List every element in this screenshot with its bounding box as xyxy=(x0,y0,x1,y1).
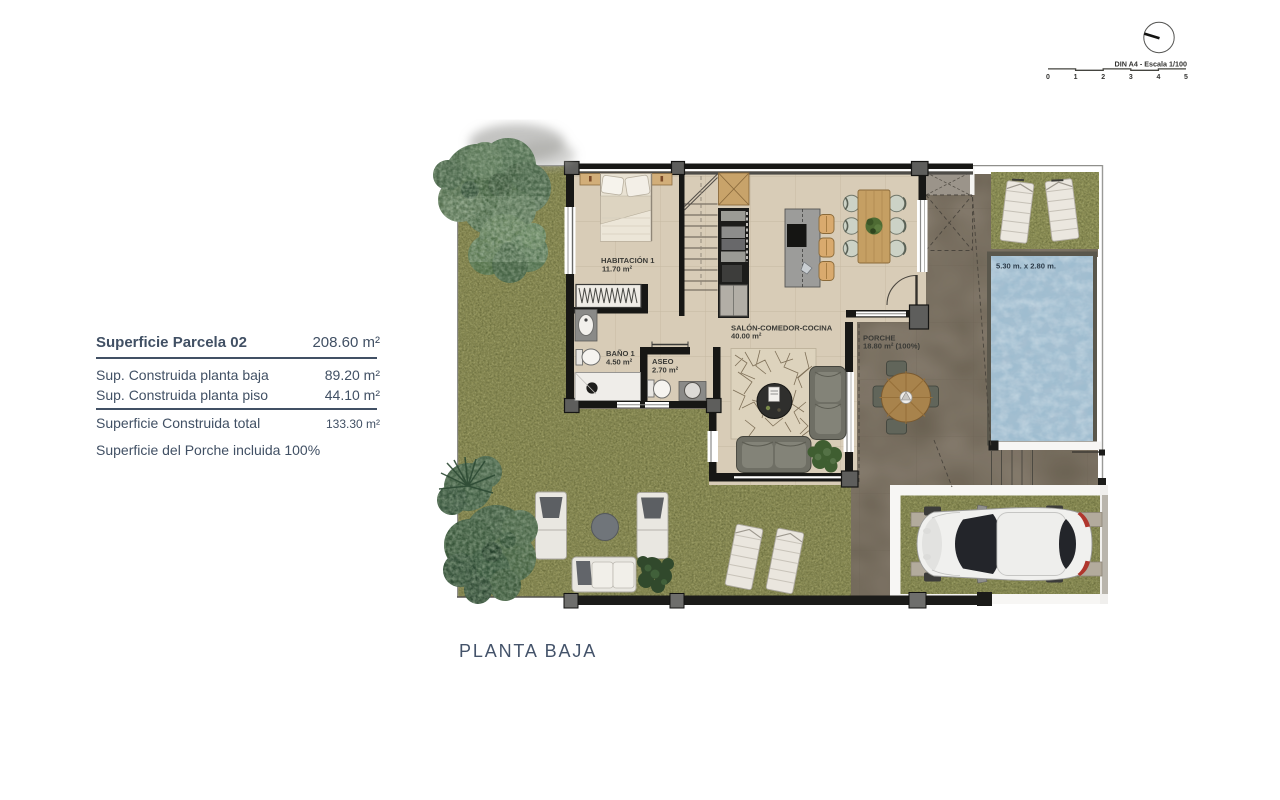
svg-text:1: 1 xyxy=(1074,74,1078,81)
svg-text:DIN A4 - Escala 1/100: DIN A4 - Escala 1/100 xyxy=(1115,60,1187,69)
svg-text:0: 0 xyxy=(1046,74,1050,81)
svg-text:5.30 m. x 2.80 m.: 5.30 m. x 2.80 m. xyxy=(996,262,1056,271)
svg-text:2.70 m²: 2.70 m² xyxy=(652,366,679,375)
svg-text:11.70 m²: 11.70 m² xyxy=(602,265,632,274)
svg-text:4.50 m²: 4.50 m² xyxy=(606,358,633,367)
svg-text:4: 4 xyxy=(1156,74,1160,81)
svg-text:5: 5 xyxy=(1184,74,1188,81)
svg-text:3: 3 xyxy=(1129,74,1133,81)
svg-text:40.00 m²: 40.00 m² xyxy=(731,332,762,341)
svg-text:18.80 m² (100%): 18.80 m² (100%) xyxy=(863,342,920,351)
svg-text:2: 2 xyxy=(1101,74,1105,81)
